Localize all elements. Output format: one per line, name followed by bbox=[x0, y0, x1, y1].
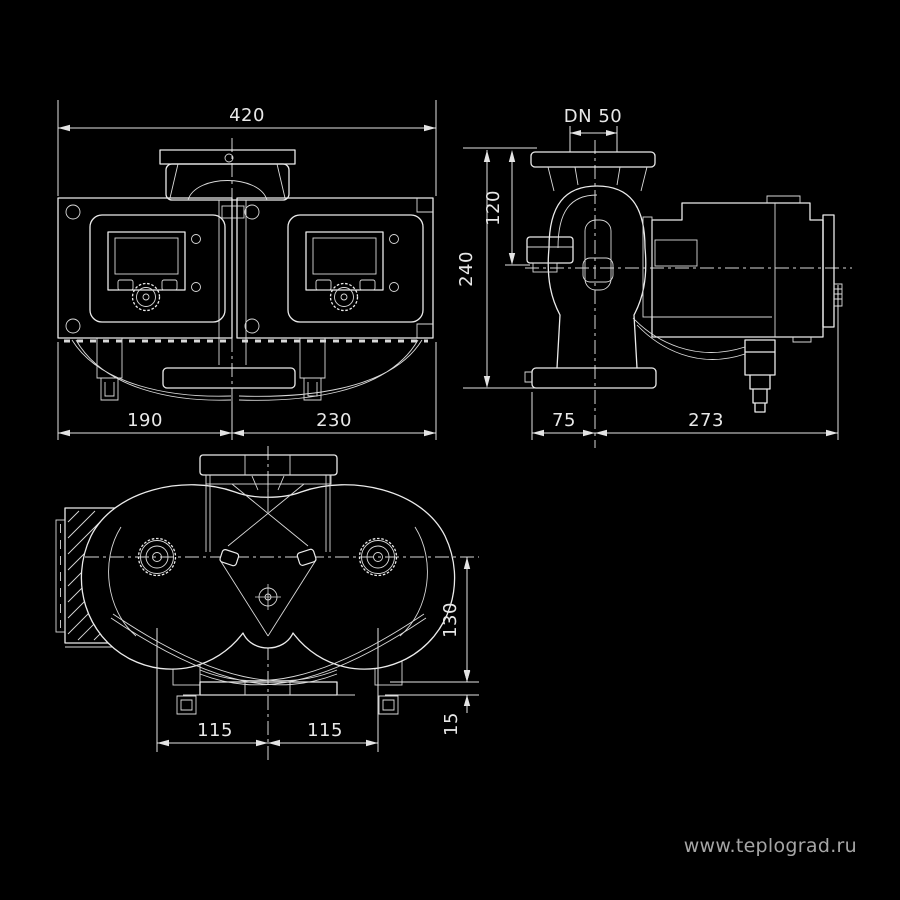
side-motor bbox=[633, 196, 842, 412]
dim-label-240: 240 bbox=[456, 251, 477, 287]
display-screen bbox=[313, 238, 376, 274]
plug-left bbox=[177, 696, 196, 714]
control-knob-center bbox=[143, 294, 149, 300]
top-view: 130 15 115 115 bbox=[56, 446, 479, 760]
volute-dome bbox=[548, 186, 646, 368]
panel-body bbox=[288, 215, 423, 322]
extension-lines bbox=[570, 126, 617, 152]
dim-label-75: 75 bbox=[552, 410, 576, 431]
display-screen bbox=[115, 238, 178, 274]
dim-label-230: 230 bbox=[316, 410, 352, 431]
front-plates bbox=[58, 198, 433, 365]
neck-spokes bbox=[548, 167, 647, 191]
cable-right bbox=[239, 340, 422, 400]
dim-top-base-height: 15 bbox=[385, 664, 479, 736]
leg-right bbox=[300, 338, 325, 400]
dim-label-190: 190 bbox=[127, 410, 163, 431]
panel-button bbox=[162, 280, 177, 290]
neck-details bbox=[170, 164, 285, 200]
volute-outline bbox=[81, 485, 454, 669]
dim-side-flange-dn: DN 50 bbox=[564, 106, 622, 152]
watermark-text: www.teplograd.ru bbox=[684, 835, 857, 857]
panel-screw-icon bbox=[390, 283, 399, 292]
panel-edge-box bbox=[527, 237, 573, 263]
front-view: 420 190 230 bbox=[58, 100, 436, 440]
dim-label-273: 273 bbox=[688, 410, 724, 431]
panel-screw-icon bbox=[192, 283, 201, 292]
plate-screw-icon bbox=[245, 319, 259, 333]
front-top-flange bbox=[160, 150, 295, 200]
plug-right bbox=[379, 696, 398, 714]
dim-front-total-width: 420 bbox=[58, 100, 436, 196]
extension-lines bbox=[58, 342, 436, 440]
drawing-canvas: 420 190 230 bbox=[0, 0, 900, 900]
bottom-flange-bar bbox=[163, 368, 295, 388]
motor-end-cap bbox=[823, 215, 834, 327]
control-knob-center bbox=[341, 294, 347, 300]
cable-left bbox=[72, 340, 231, 400]
plug-cable bbox=[633, 318, 745, 359]
dim-label-120: 120 bbox=[483, 190, 504, 226]
extension-lines bbox=[385, 682, 479, 695]
panel-screw-icon bbox=[192, 235, 201, 244]
side-view: DN 50 240 120 75 273 bbox=[456, 106, 852, 448]
dim-side-depths: 75 273 bbox=[532, 285, 838, 440]
panel-button bbox=[316, 280, 331, 290]
plate-screw-icon bbox=[66, 205, 80, 219]
dim-label-115-left: 115 bbox=[197, 720, 233, 741]
plate-screw-icon bbox=[66, 319, 80, 333]
control-panel-right bbox=[288, 215, 423, 322]
pump-dimension-drawing: 420 190 230 bbox=[0, 0, 900, 900]
dim-label-15: 15 bbox=[441, 712, 462, 736]
arrowheads bbox=[464, 671, 470, 706]
dim-label-dn50: DN 50 bbox=[564, 106, 622, 127]
top-flange bbox=[531, 152, 655, 167]
plate-left bbox=[58, 198, 232, 338]
display-frame bbox=[108, 232, 185, 290]
panel-body bbox=[90, 215, 225, 322]
plate-screw-icon bbox=[245, 205, 259, 219]
control-panel-left bbox=[90, 215, 225, 322]
plate-right bbox=[237, 198, 433, 338]
front-bottom-assembly bbox=[72, 338, 422, 400]
bottom-flange bbox=[532, 368, 656, 388]
dim-label-130: 130 bbox=[440, 602, 461, 638]
bottom-flange-step bbox=[525, 372, 532, 382]
dim-label-115-right: 115 bbox=[307, 720, 343, 741]
panel-button bbox=[360, 280, 375, 290]
display-frame bbox=[306, 232, 383, 290]
dim-label-420: 420 bbox=[229, 105, 265, 126]
volute-tube bbox=[585, 220, 611, 290]
motor-terminal-box bbox=[655, 240, 697, 266]
pipe-bracket bbox=[222, 206, 244, 218]
volute-cap bbox=[583, 258, 613, 282]
panel-button bbox=[118, 280, 133, 290]
side-pump-body bbox=[525, 152, 656, 388]
top-pump-body bbox=[81, 475, 454, 669]
flange-neck bbox=[166, 164, 289, 200]
motor-raised-block bbox=[767, 196, 800, 203]
motor-seams bbox=[652, 203, 811, 342]
cable-plug bbox=[745, 340, 775, 412]
panel-screw-icon bbox=[390, 235, 399, 244]
dim-front-bottom-widths: 190 230 bbox=[58, 342, 436, 440]
extension-lines bbox=[532, 285, 838, 440]
